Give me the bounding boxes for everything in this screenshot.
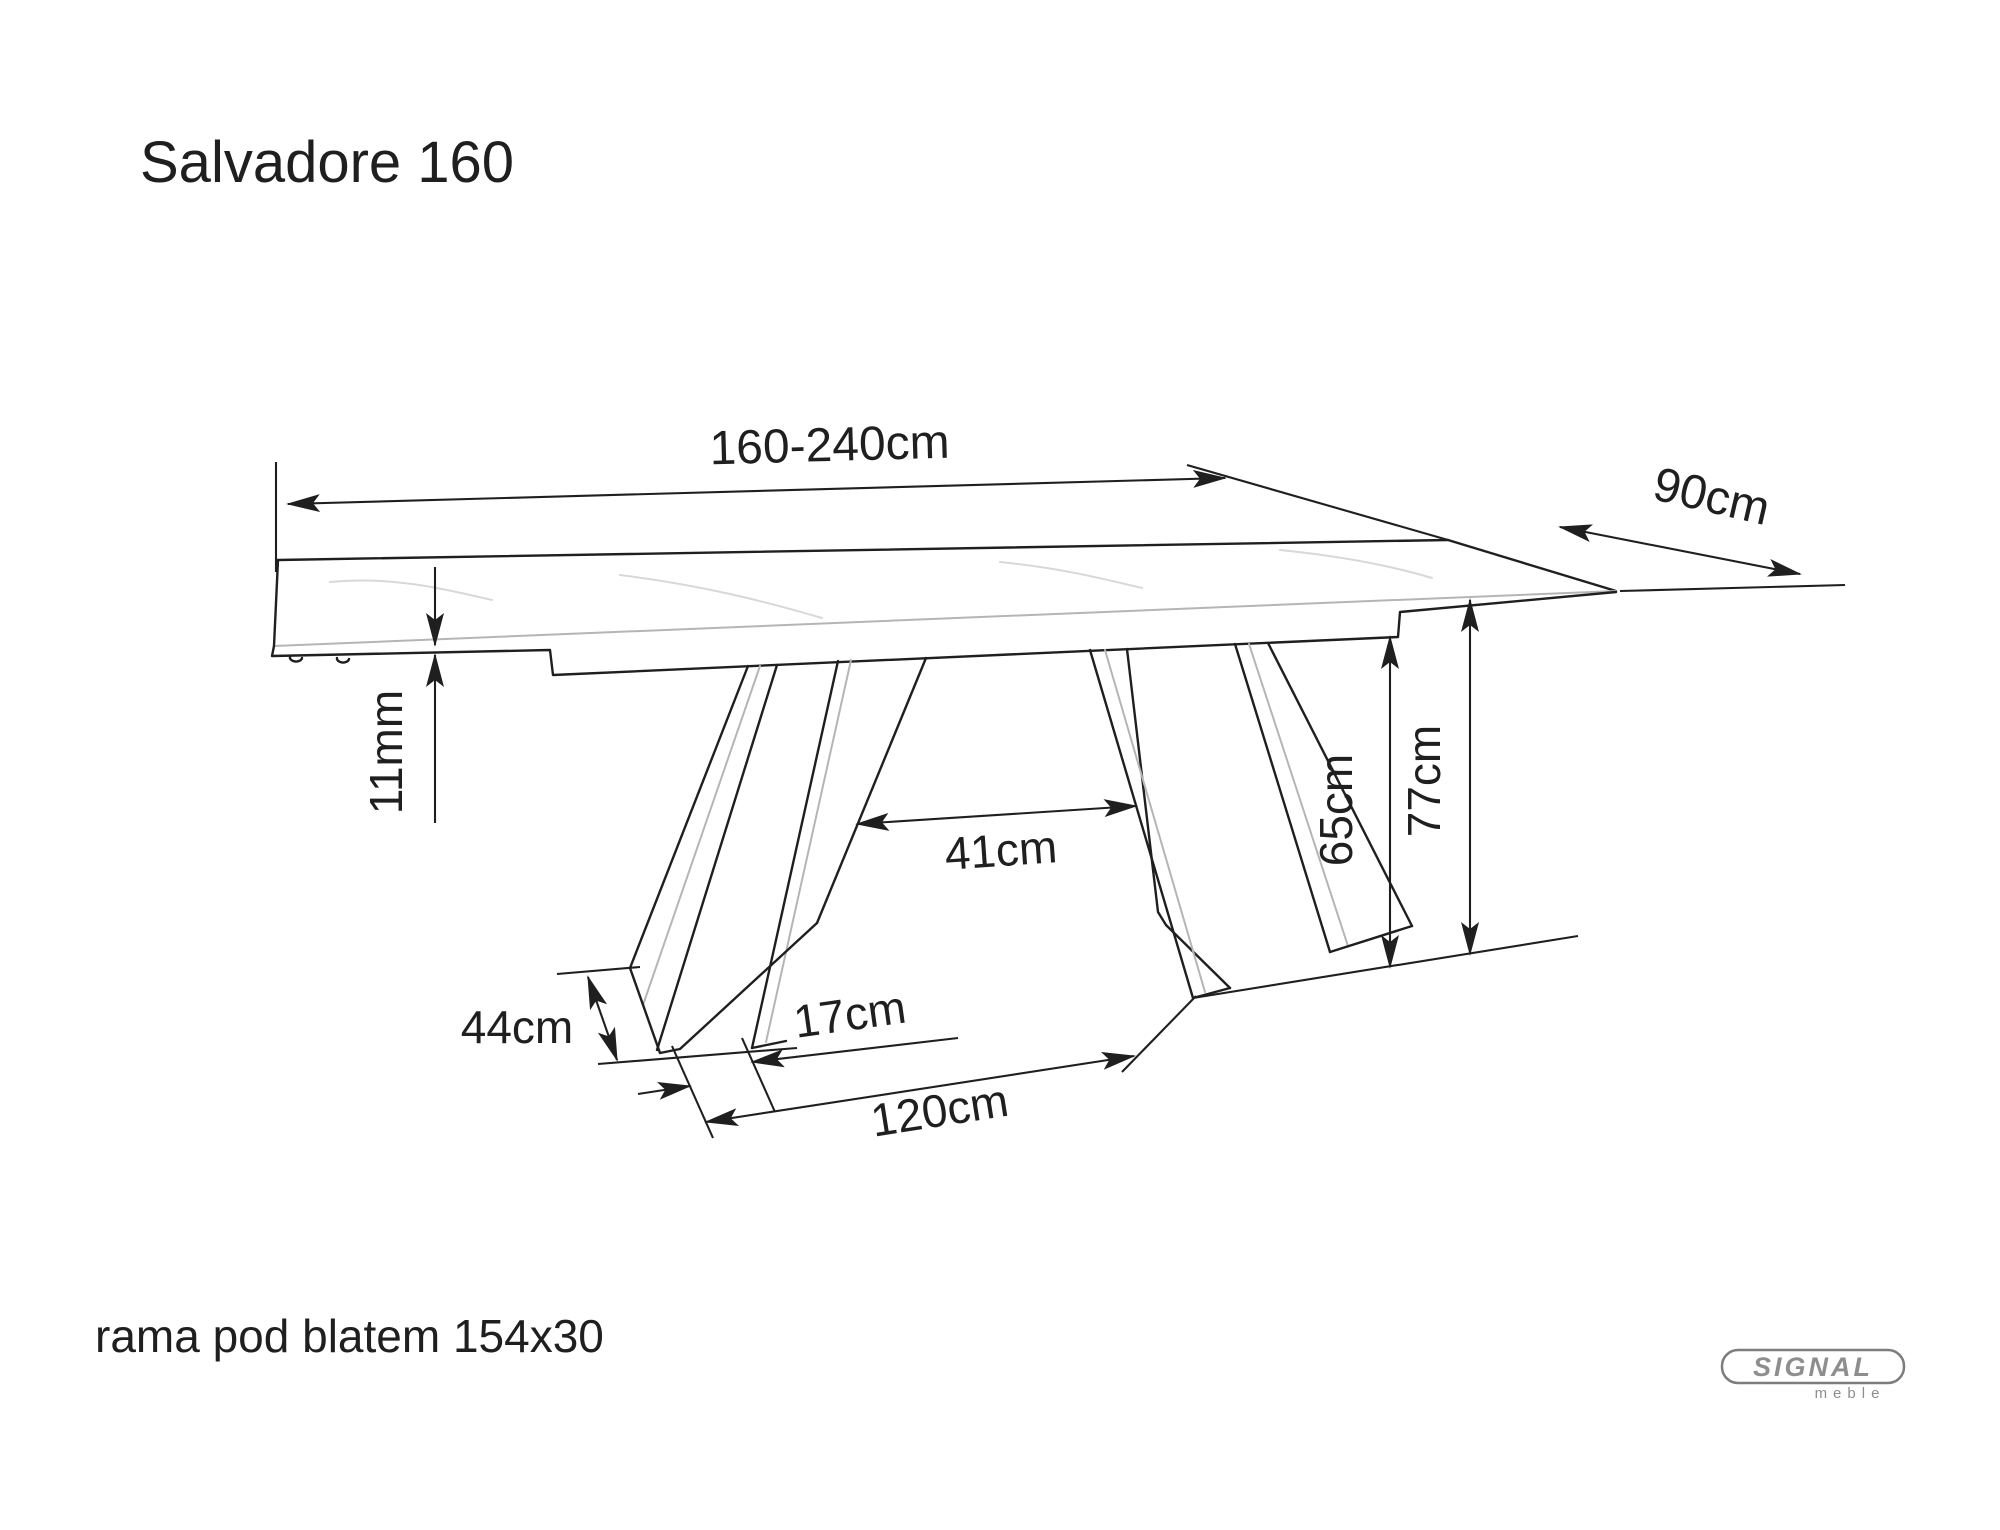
extension-line	[598, 1048, 797, 1064]
left-leg-detail-line	[643, 666, 760, 1005]
left-leg-inner-edge	[657, 665, 777, 1050]
table-technical-drawing: Salvadore 160	[0, 0, 2000, 1530]
extension-line	[672, 1046, 713, 1138]
frame-note: rama pod blatem 154x30	[95, 1310, 604, 1362]
dim-table-height-label: 77cm	[1398, 725, 1450, 837]
underside-bump	[290, 657, 302, 662]
left-back-leg-detail-line	[766, 660, 851, 1042]
dim-foot-depth-label: 44cm	[461, 1001, 573, 1053]
dimension-line	[288, 478, 1225, 504]
dimension-legs-inner-span: 41cm	[857, 806, 1136, 880]
logo-brand-text: SIGNAL	[1753, 1352, 1873, 1382]
dim-foot-width-label: 17cm	[790, 981, 909, 1048]
extension-line	[1187, 465, 1448, 540]
signal-logo: SIGNAL meble	[1722, 1350, 1904, 1402]
technical-drawing-page: Salvadore 160	[0, 0, 2000, 1530]
dimension-line	[588, 977, 617, 1060]
dim-base-span-label: 120cm	[867, 1074, 1012, 1147]
dimension-base-span: 120cm	[706, 996, 1196, 1147]
dimension-depth: 90cm	[1560, 458, 1845, 591]
underside-bump	[337, 658, 349, 663]
dimension-table-height: 77cm	[1398, 600, 1470, 954]
dim-length-label: 160-240cm	[709, 416, 951, 476]
dimension-line	[857, 806, 1136, 824]
floor-line	[1193, 936, 1578, 998]
right-leg-outer-edge	[1090, 650, 1193, 998]
extension-line	[742, 1038, 775, 1112]
left-back-leg-edge	[752, 661, 838, 1048]
dimension-frame-height: 65cm	[1310, 637, 1390, 967]
dim-depth-label: 90cm	[1648, 458, 1774, 536]
dim-thickness-label: 11mm	[360, 690, 412, 814]
page-title: Salvadore 160	[140, 130, 514, 195]
right-leg-inner-edge	[1127, 649, 1230, 988]
left-back-leg-inner-edge	[817, 658, 926, 923]
extension-line	[1620, 585, 1845, 591]
logo-sub-text: meble	[1815, 1385, 1886, 1402]
arrow-line	[638, 1086, 690, 1094]
dim-frame-height-label: 65cm	[1310, 754, 1362, 866]
left-back-foot	[752, 1041, 786, 1048]
right-leg-detail-line	[1105, 650, 1205, 992]
extension-line	[1122, 996, 1196, 1072]
dimension-line	[1560, 527, 1800, 574]
extension-line	[557, 967, 640, 974]
dim-legs-span-label: 41cm	[943, 820, 1059, 880]
tabletop	[272, 540, 1616, 675]
